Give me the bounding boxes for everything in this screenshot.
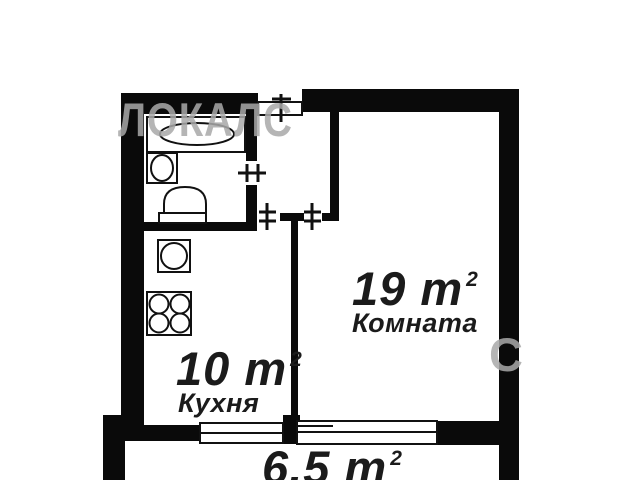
watermark-fragment: С — [489, 331, 524, 378]
door-symbol-room — [304, 203, 321, 230]
toilet-icon — [159, 187, 206, 223]
wall-room-bottom — [437, 421, 499, 445]
wall-hall-bottom-right — [322, 213, 339, 221]
wall-hall-bottom-stub — [280, 213, 304, 221]
kitchen-window — [200, 423, 283, 443]
balcony-area-label: 6.5 m2 — [262, 444, 402, 480]
floorplan-drawing — [0, 0, 631, 480]
balcony-area-sup: 2 — [390, 448, 402, 469]
room-area-label: 19 m2 — [352, 265, 478, 312]
kitchen-name-label: Кухня — [178, 390, 259, 417]
wall-right — [499, 89, 519, 480]
balcony-area-value: 6.5 — [262, 441, 330, 480]
stove-icon — [147, 292, 191, 335]
watermark-text: ЛОКАЛС — [118, 96, 293, 143]
door-symbol-bathroom — [238, 164, 266, 182]
kitchen-sink-icon — [158, 240, 190, 272]
room-area-sup: 2 — [466, 269, 478, 290]
wall-hall-room — [330, 110, 339, 221]
washbasin-icon — [147, 153, 177, 183]
kitchen-area-sup: 2 — [290, 349, 302, 370]
wall-left-lower — [103, 415, 125, 480]
wall-top-right — [302, 89, 518, 112]
balcony-area-unit: m — [344, 441, 387, 480]
room-name-label: Комната — [352, 310, 478, 337]
door-symbol-kitchen — [259, 203, 276, 230]
floorplan-image: 19 m2 Комната 10 m2 Кухня 6.5 m2 ЛОКАЛС … — [0, 0, 631, 480]
kitchen-area-label: 10 m2 — [176, 345, 302, 392]
wall-kitchen-bottom — [121, 425, 201, 441]
